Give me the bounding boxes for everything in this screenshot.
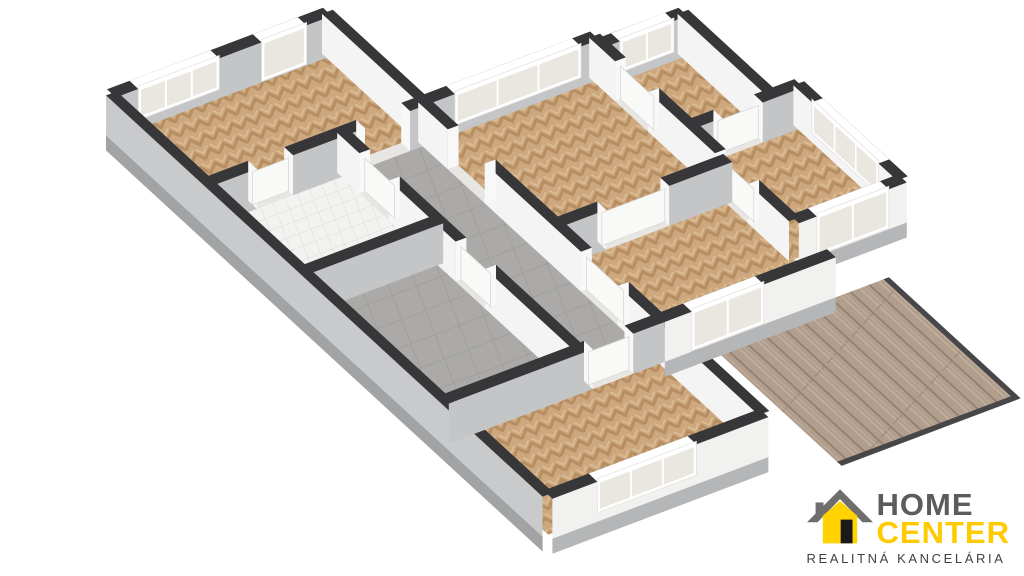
logo-row: HOME CENTER [807,480,1010,546]
logo-house-door [840,520,852,544]
logo-text-center: CENTER [877,519,1010,546]
logo-tagline: REALITNÁ KANCELÁRIA [807,551,1006,566]
logo-house-icon [807,480,873,546]
door-jamb [485,159,496,203]
logo-text-block: HOME CENTER [877,491,1010,546]
floorplan-stage: HOME CENTER REALITNÁ KANCELÁRIA [0,0,1024,576]
door-jamb [448,125,459,169]
door-jamb [401,103,410,151]
homecenter-logo: HOME CENTER REALITNÁ KANCELÁRIA [807,480,1010,566]
walls-layer [106,8,908,554]
